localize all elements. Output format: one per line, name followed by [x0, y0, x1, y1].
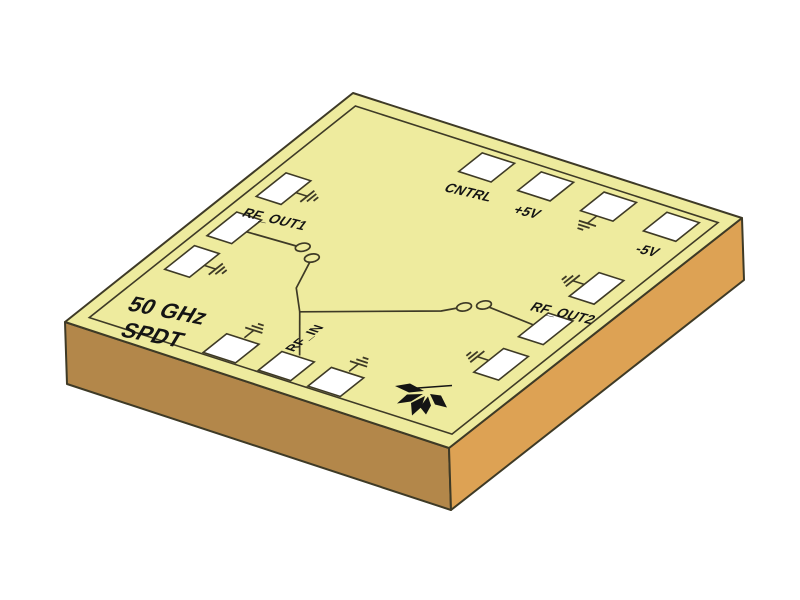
chip-illustration-canvas: CNTRL +5V -5V RF_OUT1 RF_OUT2 RF_IN 50 G… [0, 0, 800, 600]
spdt-chip-isometric-drawing: CNTRL +5V -5V RF_OUT1 RF_OUT2 RF_IN 50 G… [0, 0, 800, 600]
